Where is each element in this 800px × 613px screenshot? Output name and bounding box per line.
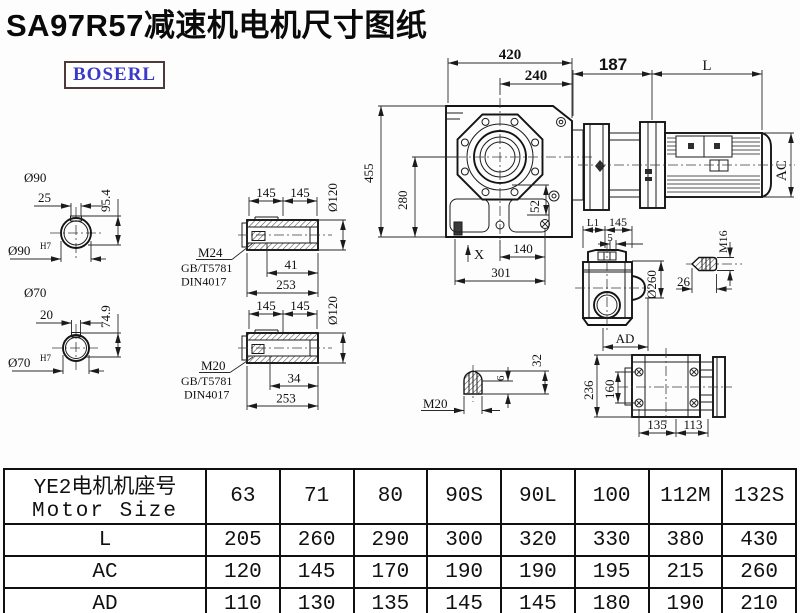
dim-label: 240	[525, 68, 548, 84]
value-cell: 380	[649, 524, 723, 556]
dim-label: 95.4	[98, 189, 113, 212]
shaft-end-view-90: Ø90 25 95.4 Ø90 H7	[8, 170, 121, 262]
row-label: AC	[4, 556, 206, 588]
dim-label: 135	[647, 417, 667, 432]
thread-label: M16	[716, 230, 730, 253]
dim-label: 34	[288, 371, 302, 386]
value-cell: 195	[575, 556, 649, 588]
table-header-motor-size: YE2电机机座号 Motor Size	[4, 469, 206, 524]
frame-size-cell: 100	[575, 469, 649, 524]
standard-label: GB/T5781	[181, 374, 232, 388]
dim-label: 113	[683, 417, 702, 432]
dim-label: AC	[774, 160, 790, 181]
dim-label: 253	[276, 277, 296, 292]
dim-label: L	[702, 58, 711, 74]
dimension-sheet: SA97R57减速机电机尺寸图纸 BOSERL Ø90	[0, 0, 800, 613]
value-cell: 120	[206, 556, 280, 588]
dim-label: 5	[607, 232, 613, 244]
dim-label: 145	[256, 185, 276, 200]
value-cell: 215	[649, 556, 723, 588]
dim-tolerance: H7	[40, 241, 51, 251]
row-label: AD	[4, 588, 206, 613]
row-label: L	[4, 524, 206, 556]
bolt-holes	[635, 368, 698, 407]
bolt-detail-m16: M16 26	[676, 230, 742, 293]
dim-label: 160	[602, 380, 617, 400]
dim-label: 145	[290, 185, 310, 200]
dim-label: 26	[677, 274, 691, 289]
standard-label: GB/T5781	[181, 261, 232, 275]
dim-label: AD	[616, 331, 635, 346]
thread-label: M20	[201, 358, 226, 373]
value-cell: 130	[280, 588, 354, 613]
gearbox-bottom-view: 236 160 135 113	[581, 348, 732, 437]
frame-size-cell: 132S	[722, 469, 796, 524]
table-header-en: Motor Size	[5, 500, 205, 523]
value-cell: 320	[501, 524, 575, 556]
x-mark-label: X	[474, 248, 484, 263]
value-cell: 330	[575, 524, 649, 556]
frame-size-cell: 80	[354, 469, 428, 524]
value-cell: 190	[501, 556, 575, 588]
value-cell: 290	[354, 524, 428, 556]
gearbox-front-view: 420 240 455 280 52 X 140 301	[361, 47, 592, 285]
dim-label: 280	[395, 191, 410, 211]
frame-size-cell: 71	[280, 469, 354, 524]
dim-label: 140	[513, 241, 533, 256]
motor-side-view: 187 L AC	[573, 55, 795, 210]
dim-label: 236	[581, 380, 596, 400]
frame-size-cell: 112M	[649, 469, 723, 524]
value-cell: 170	[354, 556, 428, 588]
dim-label: 420	[499, 47, 522, 63]
table-header-row: YE2电机机座号 Motor Size 63 71 80 90S 90L 100…	[4, 469, 796, 524]
shaft-end-view-70: Ø70 20 74.9 Ø70 H7	[8, 285, 121, 374]
dim-label: 52	[527, 200, 542, 213]
value-cell: 145	[501, 588, 575, 613]
motor-size-table: YE2电机机座号 Motor Size 63 71 80 90S 90L 100…	[3, 468, 797, 613]
value-cell: 205	[206, 524, 280, 556]
bolt-detail-m20: M20 6 32	[421, 354, 549, 414]
frame-size-cell: 63	[206, 469, 280, 524]
value-cell: 135	[354, 588, 428, 613]
dim-label: 25	[38, 190, 51, 205]
dim-label: 253	[276, 391, 296, 406]
thread-label: M24	[198, 245, 223, 260]
dim-label: Ø120	[325, 183, 340, 212]
value-cell: 210	[722, 588, 796, 613]
standard-label: DIN4017	[184, 388, 229, 402]
sleeve-drawing-m24: 145 145 Ø120 M24 GB/T5781 DIN4017 41 253	[181, 183, 346, 297]
value-cell: 430	[722, 524, 796, 556]
dim-label: 74.9	[98, 305, 113, 328]
dim-label: 20	[40, 307, 53, 322]
table-row-L: L 205 260 290 300 320 330 380 430	[4, 524, 796, 556]
sleeve-drawing-m20: 145 145 Ø120 M20 GB/T5781 DIN4017 34 253	[181, 296, 346, 410]
dim-label: Ø90	[24, 170, 46, 185]
value-cell: 190	[649, 588, 723, 613]
value-cell: 110	[206, 588, 280, 613]
table-row-AD: AD 110 130 135 145 145 180 190 210	[4, 588, 796, 613]
gearbox-side-view: L1 145 5 Ø260 AD	[575, 215, 664, 351]
dim-label: 187	[599, 55, 627, 74]
frame-size-cell: 90L	[501, 469, 575, 524]
value-cell: 260	[280, 524, 354, 556]
dim-label: 6	[495, 375, 507, 381]
dim-tolerance: H7	[40, 353, 51, 363]
dim-label: 145	[256, 298, 276, 313]
dim-label: 32	[529, 354, 544, 367]
dim-label: 145	[290, 298, 310, 313]
value-cell: 190	[427, 556, 501, 588]
value-cell: 180	[575, 588, 649, 613]
value-cell: 145	[427, 588, 501, 613]
value-cell: 145	[280, 556, 354, 588]
dim-label: Ø260	[644, 270, 659, 299]
dim-label: 41	[285, 257, 298, 272]
dim-label: 145	[609, 215, 627, 229]
dim-label: Ø70	[24, 285, 46, 300]
dim-label: 301	[491, 265, 511, 280]
dim-label: Ø90	[8, 243, 30, 258]
dim-label: 455	[361, 164, 376, 184]
table-header-cn: YE2电机机座号	[5, 470, 205, 500]
thread-label: M20	[423, 396, 448, 411]
value-cell: 260	[722, 556, 796, 588]
dim-label: Ø120	[325, 296, 340, 325]
frame-size-cell: 90S	[427, 469, 501, 524]
standard-label: DIN4017	[181, 275, 226, 289]
value-cell: 300	[427, 524, 501, 556]
dim-label: L1	[587, 217, 599, 229]
dim-label: Ø70	[8, 355, 30, 370]
technical-drawing: Ø90 25 95.4 Ø90 H7 Ø70	[0, 0, 800, 466]
table-row-AC: AC 120 145 170 190 190 195 215 260	[4, 556, 796, 588]
